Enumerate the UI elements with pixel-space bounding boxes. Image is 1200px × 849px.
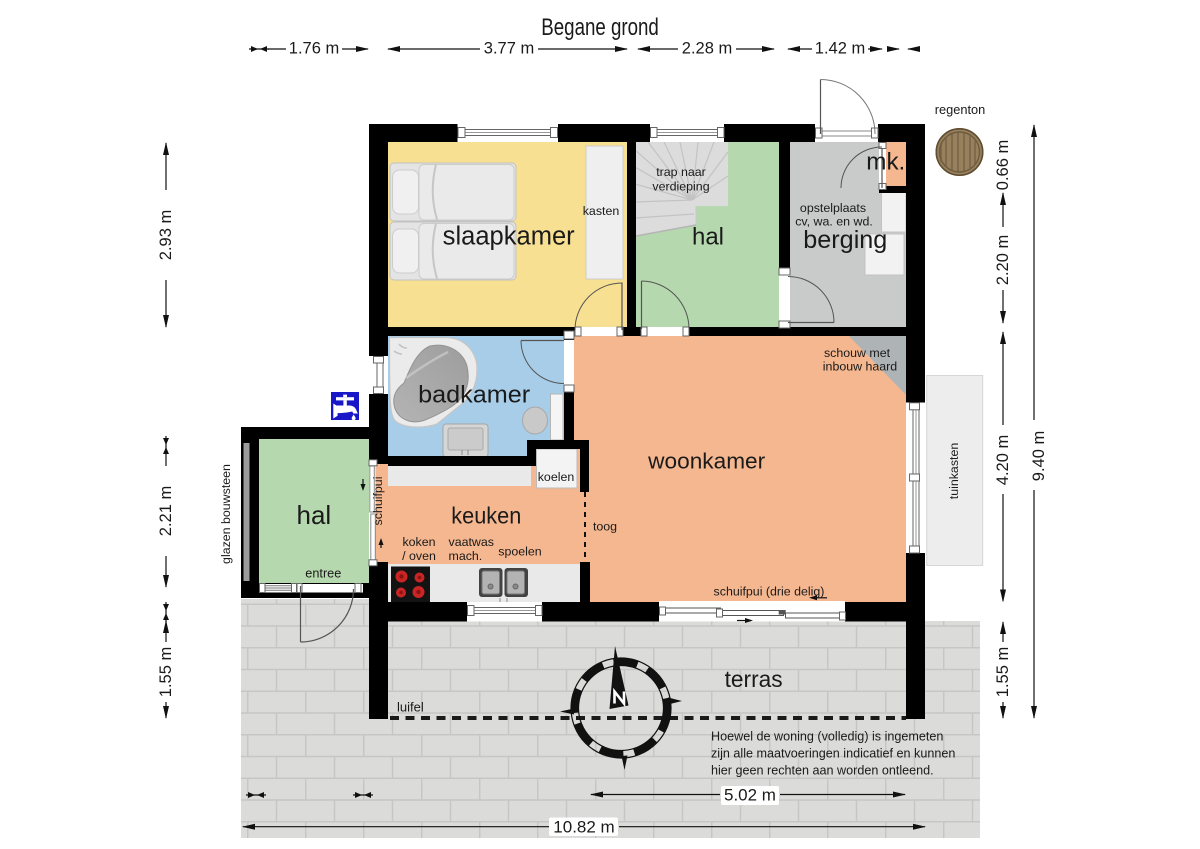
svg-text:schuifpui: schuifpui — [371, 477, 385, 526]
svg-text:spoelen: spoelen — [498, 545, 542, 559]
svg-text:entree: entree — [305, 567, 341, 581]
svg-text:1.42 m: 1.42 m — [815, 40, 865, 58]
svg-text:2.93 m: 2.93 m — [157, 210, 175, 260]
svg-text:2.20 m: 2.20 m — [994, 235, 1012, 285]
svg-text:inbouw haard: inbouw haard — [823, 360, 898, 374]
svg-text:0.66 m: 0.66 m — [994, 140, 1012, 190]
svg-text:trap naar: trap naar — [656, 165, 706, 179]
svg-text:hal: hal — [297, 500, 332, 530]
svg-text:mach.: mach. — [449, 549, 483, 563]
svg-text:glazen bouwsteen: glazen bouwsteen — [219, 464, 233, 564]
svg-text:2.28 m: 2.28 m — [682, 40, 732, 58]
svg-text:toog: toog — [593, 520, 617, 534]
svg-text:5.02 m: 5.02 m — [724, 786, 776, 805]
svg-text:2.21 m: 2.21 m — [157, 486, 175, 536]
svg-text:schuifpui (drie delig): schuifpui (drie delig) — [714, 585, 825, 599]
svg-text:9.40 m: 9.40 m — [1030, 431, 1048, 481]
svg-text:10.82 m: 10.82 m — [553, 818, 614, 837]
svg-text:slaapkamer: slaapkamer — [443, 222, 576, 250]
svg-text:4.20 m: 4.20 m — [994, 435, 1012, 485]
svg-text:hal: hal — [692, 224, 724, 251]
svg-text:zijn alle maatvoeringen indica: zijn alle maatvoeringen indicatief en ku… — [711, 747, 955, 761]
svg-text:keuken: keuken — [451, 503, 521, 529]
svg-text:3.77 m: 3.77 m — [484, 40, 534, 58]
svg-text:vaatwas: vaatwas — [449, 535, 494, 549]
svg-text:verdieping: verdieping — [652, 180, 709, 194]
svg-text:badkamer: badkamer — [418, 382, 530, 409]
svg-text:mk.: mk. — [866, 149, 905, 176]
svg-text:cv, wa. en wd.: cv, wa. en wd. — [795, 215, 873, 229]
svg-text:Hoewel de woning (volledig) is: Hoewel de woning (volledig) is ingemeten — [711, 730, 943, 744]
svg-text:hier geen rechten aan worden o: hier geen rechten aan worden ontleend. — [711, 764, 934, 778]
svg-text:terras: terras — [725, 666, 783, 692]
svg-text:/ oven: / oven — [402, 549, 436, 563]
svg-text:regenton: regenton — [935, 102, 986, 117]
svg-text:Begane grond: Begane grond — [541, 14, 659, 41]
svg-text:1.55 m: 1.55 m — [994, 647, 1012, 697]
svg-text:tuinkasten: tuinkasten — [947, 443, 961, 500]
svg-text:koken: koken — [402, 535, 435, 549]
svg-text:1.55 m: 1.55 m — [157, 647, 175, 697]
svg-text:berging: berging — [803, 226, 887, 254]
svg-text:kasten: kasten — [583, 204, 620, 218]
svg-text:opstelplaats: opstelplaats — [800, 201, 866, 215]
svg-text:schouw met: schouw met — [824, 346, 891, 360]
svg-text:1.76 m: 1.76 m — [289, 40, 339, 58]
svg-text:luifel: luifel — [397, 700, 424, 715]
svg-text:woonkamer: woonkamer — [647, 448, 766, 473]
svg-text:koelen: koelen — [538, 470, 575, 484]
